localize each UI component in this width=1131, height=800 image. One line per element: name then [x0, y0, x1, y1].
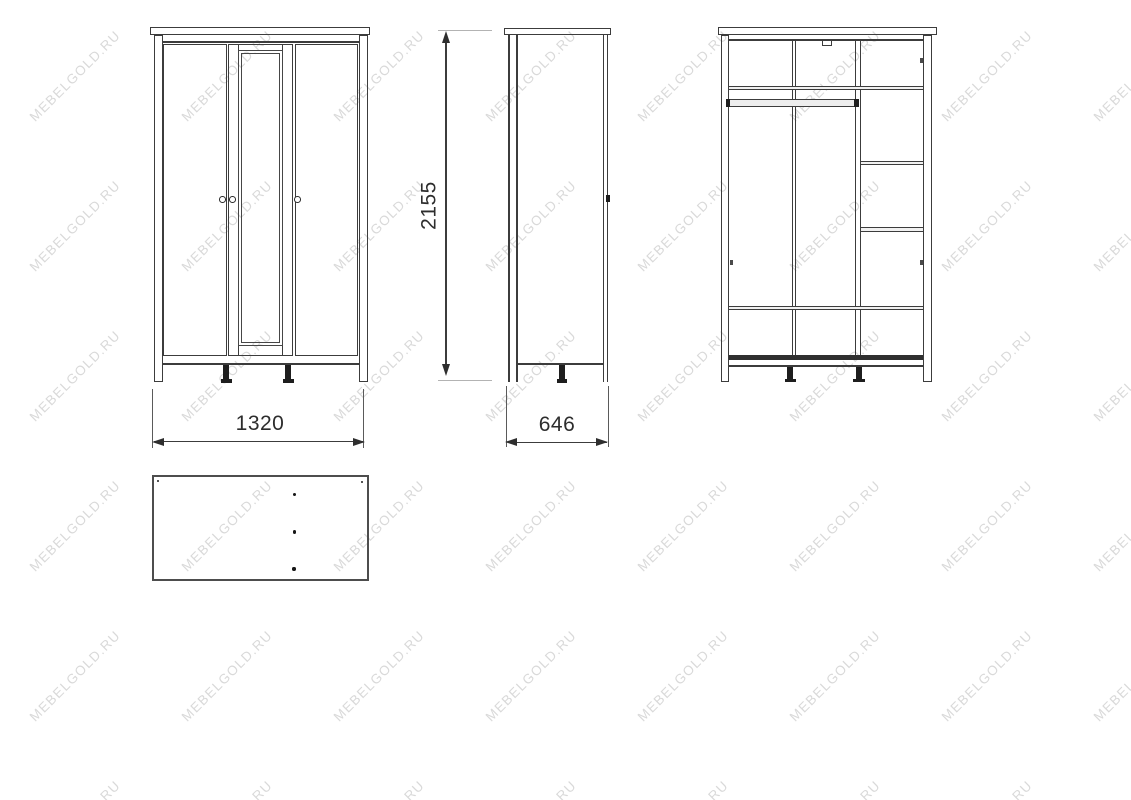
- width-dim-arrow-left: [152, 438, 164, 446]
- watermark-text: MEBELGOLD.RU: [787, 628, 884, 725]
- width-dim-label: 1320: [225, 412, 295, 435]
- interior-bottom-shelf-band: [729, 355, 923, 360]
- height-dim-arrow-top: [442, 31, 450, 43]
- width-dim-arrow-right: [353, 438, 365, 446]
- top-view-corner-mark-right: [361, 481, 363, 483]
- watermark-text: MEBELGOLD.RU: [1091, 778, 1131, 800]
- watermark-text: MEBELGOLD.RU: [939, 178, 1036, 275]
- interior-left-side-panel: [721, 35, 730, 383]
- side-foot-plate: [557, 379, 568, 383]
- watermark-text: MEBELGOLD.RU: [635, 628, 732, 725]
- interior-hinge-mark-left: [730, 260, 733, 265]
- interior-rod-bracket-left: [726, 99, 731, 107]
- front-door-right: [295, 44, 359, 357]
- mirror-frame-inner: [241, 53, 280, 343]
- watermark-text: MEBELGOLD.RU: [635, 328, 732, 425]
- watermark-text: MEBELGOLD.RU: [483, 328, 580, 425]
- watermark-text: MEBELGOLD.RU: [27, 478, 124, 575]
- side-front-edge-inner-line: [516, 35, 517, 382]
- watermark-text: MEBELGOLD.RU: [939, 28, 1036, 125]
- watermark-text: MEBELGOLD.RU: [483, 778, 580, 800]
- height-dim-extension-bottom: [438, 380, 492, 381]
- side-back-edge-outer-line: [607, 35, 608, 382]
- watermark-text: MEBELGOLD.RU: [787, 328, 884, 425]
- side-top-cap: [504, 28, 611, 35]
- door-right-handle: [294, 196, 301, 203]
- watermark-text: MEBELGOLD.RU: [635, 178, 732, 275]
- height-dim-arrow-bottom: [442, 364, 450, 376]
- technical-drawing-canvas: MEBELGOLD.RUMEBELGOLD.RUMEBELGOLD.RUMEBE…: [0, 0, 1131, 800]
- watermark-text: MEBELGOLD.RU: [635, 28, 732, 125]
- door-left-handle: [219, 196, 226, 203]
- height-dim-line: [445, 34, 446, 365]
- front-left-side-panel: [154, 35, 163, 383]
- side-front-edge-outer-line: [508, 35, 509, 382]
- depth-dim-line: [508, 442, 608, 443]
- watermark-text: MEBELGOLD.RU: [483, 478, 580, 575]
- front-foot-right-stem: [285, 365, 291, 379]
- interior-top-bracket-notch: [822, 41, 832, 46]
- watermark-text: MEBELGOLD.RU: [939, 628, 1036, 725]
- watermark-text: MEBELGOLD.RU: [483, 628, 580, 725]
- interior-right-shelf-3: [861, 227, 923, 232]
- side-back-edge-inner-line: [603, 35, 604, 382]
- watermark-text: MEBELGOLD.RU: [1091, 328, 1131, 425]
- watermark-text: MEBELGOLD.RU: [939, 778, 1036, 800]
- interior-cornice: [718, 27, 937, 34]
- watermark-text: MEBELGOLD.RU: [787, 778, 884, 800]
- watermark-text: MEBELGOLD.RU: [483, 28, 580, 125]
- watermark-text: MEBELGOLD.RU: [1091, 28, 1131, 125]
- watermark-text: MEBELGOLD.RU: [27, 328, 124, 425]
- front-foot-right-plate: [283, 379, 294, 383]
- watermark-text: MEBELGOLD.RU: [635, 478, 732, 575]
- watermark-text: MEBELGOLD.RU: [787, 178, 884, 275]
- interior-foot-left-stem: [787, 367, 793, 379]
- interior-hinge-mark-right: [920, 260, 923, 265]
- top-view-panel: [152, 475, 369, 581]
- front-foot-left-plate: [221, 379, 232, 383]
- watermark-text: MEBELGOLD.RU: [331, 628, 428, 725]
- top-view-fitting-dot-2: [293, 530, 296, 533]
- interior-right-shelf-2: [861, 161, 923, 165]
- top-view-corner-mark-left: [157, 480, 159, 482]
- interior-foot-left-plate: [785, 379, 796, 383]
- watermark-text: MEBELGOLD.RU: [27, 178, 124, 275]
- front-bottom-rail-line: [163, 363, 359, 366]
- width-dim-line: [154, 441, 363, 442]
- interior-foot-right-plate: [853, 379, 864, 383]
- depth-dim-arrow-right: [596, 438, 608, 446]
- depth-dim-label: 646: [524, 413, 590, 436]
- interior-hinge-mark-top: [920, 58, 923, 63]
- front-right-side-panel: [359, 35, 368, 383]
- watermark-text: MEBELGOLD.RU: [1091, 178, 1131, 275]
- watermark-text: MEBELGOLD.RU: [27, 28, 124, 125]
- side-foot-stem: [559, 365, 565, 379]
- depth-dim-extension-right: [608, 386, 609, 447]
- watermark-text: MEBELGOLD.RU: [1091, 478, 1131, 575]
- side-handle-mark: [606, 195, 610, 202]
- top-view-fitting-dot-3: [292, 567, 295, 570]
- watermark-text: MEBELGOLD.RU: [1091, 628, 1131, 725]
- watermark-text: MEBELGOLD.RU: [27, 778, 124, 800]
- watermark-text: MEBELGOLD.RU: [27, 628, 124, 725]
- watermark-text: MEBELGOLD.RU: [483, 178, 580, 275]
- height-dim-label: 2155: [417, 172, 440, 238]
- door-middle-handle: [229, 196, 236, 203]
- interior-foot-right-stem: [856, 367, 862, 379]
- watermark-text: MEBELGOLD.RU: [179, 778, 276, 800]
- watermark-text: MEBELGOLD.RU: [331, 778, 428, 800]
- interior-top-shelf: [729, 86, 923, 90]
- watermark-text: MEBELGOLD.RU: [787, 478, 884, 575]
- interior-base-line: [729, 365, 923, 367]
- front-foot-left-stem: [223, 365, 229, 379]
- interior-right-side-panel: [923, 35, 932, 383]
- watermark-text: MEBELGOLD.RU: [635, 778, 732, 800]
- depth-dim-arrow-left: [505, 438, 517, 446]
- watermark-text: MEBELGOLD.RU: [179, 628, 276, 725]
- interior-hanging-rod: [726, 99, 859, 106]
- front-door-left: [163, 44, 227, 357]
- watermark-text: MEBELGOLD.RU: [939, 478, 1036, 575]
- watermark-text: MEBELGOLD.RU: [787, 28, 884, 125]
- interior-middle-shelf: [729, 306, 923, 310]
- front-cornice: [150, 27, 370, 35]
- watermark-text: MEBELGOLD.RU: [939, 328, 1036, 425]
- interior-rod-bracket-right: [854, 99, 859, 107]
